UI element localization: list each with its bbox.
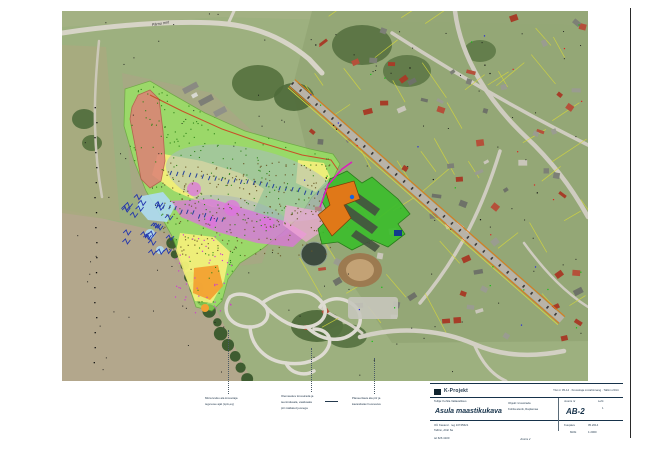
- leader-line: [228, 330, 229, 394]
- title-block-footer-row: OÜ Kavand · reg 10745621 Tallinn, Ahtri …: [430, 421, 623, 445]
- drawing-title: Asula maastikukava: [435, 408, 502, 415]
- zone-magenta-blob: [187, 182, 201, 196]
- leht-number: 1: [602, 406, 604, 410]
- note-line: teenindusala, vaatlusala: [281, 400, 313, 404]
- company-logo-icon: [434, 389, 441, 395]
- aerial-site-plan-map: Pärnu mnt: [62, 11, 588, 381]
- legend-dash: [325, 401, 338, 402]
- woods-patch: [383, 55, 431, 87]
- note-line: kavandatav hoonestus: [352, 402, 381, 406]
- client-caption: Tellija: Kohila Vallavalitsus: [434, 399, 466, 403]
- leader-line: [374, 358, 375, 394]
- note-line: Müra leviku ala krossiraja: [205, 396, 238, 400]
- map-note-3: Planeeritava ala piir ja kavandatav hoon…: [352, 396, 392, 408]
- zone-orange-spot: [201, 304, 209, 312]
- note-line: Olemasolev krossirada ja: [281, 394, 313, 398]
- map-note-1: Müra leviku ala krossiraja tegevuse ajal…: [205, 396, 250, 408]
- zone-magenta-blob: [260, 217, 274, 231]
- date-caption: Kuupäev: [564, 423, 575, 427]
- title-block-main-row: Tellija: Kohila Vallavalitsus Asula maas…: [430, 398, 623, 421]
- pond: [301, 242, 327, 266]
- map-note-2: Olemasolev krossirada ja teenindusala, v…: [281, 394, 326, 412]
- note-line: Planeeritava ala piir ja: [352, 396, 381, 400]
- scale-value: 1:2000: [588, 430, 597, 434]
- object-line-1: Objekt: krossirada: [508, 401, 531, 405]
- title-block: K-Projekt Töö nr 05-14 · Krossiraja müra…: [430, 383, 623, 445]
- leht-caption: Leht: [598, 399, 603, 403]
- woods-patch: [72, 109, 96, 129]
- site-navy-square: [394, 230, 402, 236]
- object-line-2: Kohila alevik, Raplamaa: [508, 407, 538, 411]
- title-block-header-row: K-Projekt Töö nr 05-14 · Krossiraja müra…: [430, 383, 623, 398]
- scale-caption: Mõõt: [570, 430, 576, 434]
- parking-area: [348, 297, 398, 319]
- sheet-caption: Joonis nr: [564, 399, 575, 403]
- zone-lightblue-spot: [156, 246, 164, 254]
- dirt-oval-inner: [346, 259, 374, 281]
- map-canvas: Pärnu mnt: [62, 11, 588, 381]
- firm-line-1: OÜ Kavand · reg 10745621: [434, 423, 468, 427]
- drawing-number-note: Joonis 2: [520, 437, 530, 441]
- note-line: tegevuse ajal (LpA,eq): [205, 402, 238, 406]
- firm-line-2: Tallinn, Ahtri 6a: [434, 428, 453, 432]
- project-info-line: Töö nr 05-14 · Krossiraja mürahinnang · …: [554, 388, 619, 392]
- sheet-edge-line: [630, 8, 631, 438]
- firm-line-3: tel 626 4100: [434, 436, 449, 440]
- leader-line: [311, 348, 312, 392]
- drawing-sheet: { "sheet": {"bg": "#ffffff", "edge_color…: [0, 0, 650, 459]
- company-name: K-Projekt: [444, 388, 468, 394]
- date-value: 05.2014: [588, 423, 598, 427]
- sheet-number: AB-2: [566, 407, 585, 416]
- site-blue-marker: [350, 195, 354, 199]
- note-line: piir näidatud joonega: [281, 406, 313, 410]
